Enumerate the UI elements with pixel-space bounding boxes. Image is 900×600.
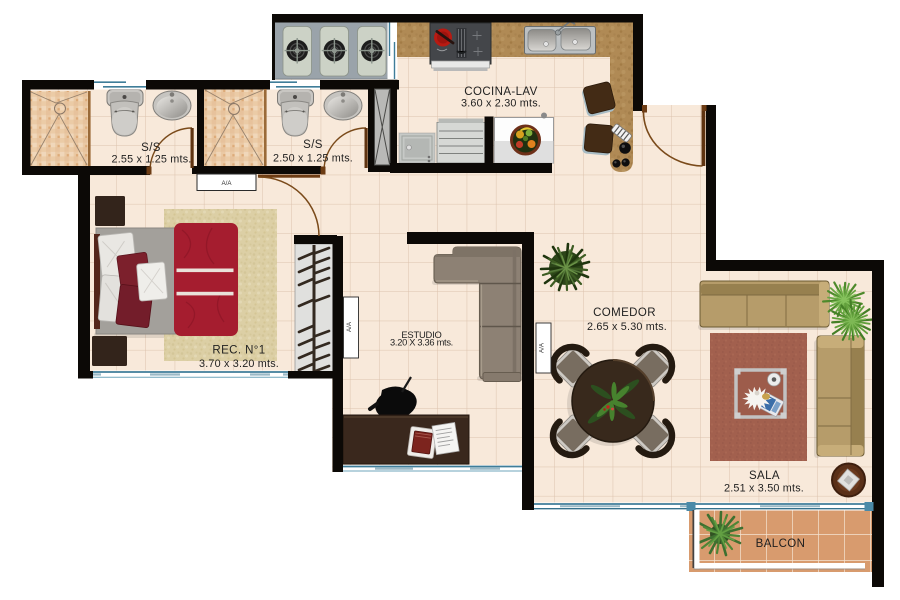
svg-text:COCINA-LAV: COCINA-LAV bbox=[464, 86, 537, 98]
svg-text:S/S: S/S bbox=[303, 139, 323, 151]
svg-text:2.55 x 1.25 mts.: 2.55 x 1.25 mts. bbox=[111, 154, 191, 166]
svg-text:2.50 x 1.25 mts.: 2.50 x 1.25 mts. bbox=[273, 153, 353, 165]
svg-text:A/A: A/A bbox=[222, 180, 233, 187]
svg-text:3.60 x 2.30 mts.: 3.60 x 2.30 mts. bbox=[461, 98, 541, 110]
svg-text:S/S: S/S bbox=[141, 142, 161, 154]
svg-text:2.51 x 3.50 mts.: 2.51 x 3.50 mts. bbox=[724, 483, 804, 495]
svg-text:A/A: A/A bbox=[346, 321, 353, 332]
svg-text:BALCON: BALCON bbox=[756, 538, 806, 550]
svg-text:A/A: A/A bbox=[539, 342, 546, 353]
svg-text:3.20 X 3.36 mts.: 3.20 X 3.36 mts. bbox=[390, 338, 453, 348]
svg-text:COMEDOR: COMEDOR bbox=[593, 307, 656, 319]
svg-text:3.70 x 3.20 mts.: 3.70 x 3.20 mts. bbox=[199, 358, 279, 370]
svg-text:2.65 x 5.30 mts.: 2.65 x 5.30 mts. bbox=[587, 321, 667, 333]
svg-text:REC. N°1: REC. N°1 bbox=[212, 345, 265, 357]
svg-text:SALA: SALA bbox=[749, 470, 780, 482]
